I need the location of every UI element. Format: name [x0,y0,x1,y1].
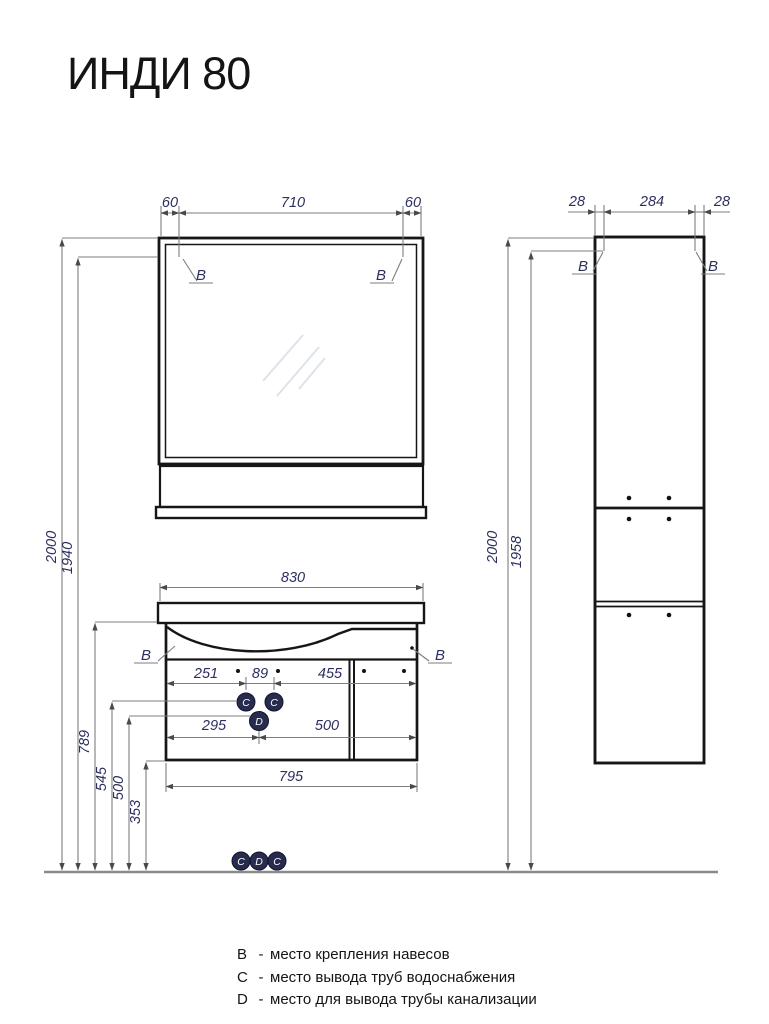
legend-key-b: B [237,946,252,963]
mounting-dot [276,669,280,673]
dim-vanity-row1: 251 89 455 [167,666,416,690]
leader-line [183,259,197,281]
dim-left-heights: 2000 1940 789 545 500 353 [44,238,251,870]
dim-label: 500 [111,776,127,800]
legend-text-d: место для вывода трубы канализации [270,991,537,1008]
dim-vanity-830: 830 [160,570,423,601]
legend-row-b: B-место крепления навесов [237,946,537,969]
mirror-reflection [263,335,325,396]
c-marker-label: C [270,697,278,709]
dim-label: 710 [281,195,305,211]
b-label: B [578,258,588,275]
dim-mirror-top: 60 710 60 [161,195,421,257]
callout-b-vanity-left: B [134,646,175,664]
basin-curve [167,627,416,651]
legend: B-место крепления навесов C-место вывода… [237,946,537,1014]
dim-label: 28 [713,194,730,210]
legend-row-d: D-место для вывода трубы канализации [237,991,537,1014]
dim-label: 830 [281,570,305,586]
dim-vanity-row2: 295 500 [167,718,416,744]
dim-label: 2000 [485,531,501,564]
mounting-dot [627,517,632,522]
c-marker-label: C [237,856,245,868]
mounting-dot [627,496,632,501]
dim-label: 295 [201,718,227,734]
b-label: B [196,267,206,284]
dim-label: 284 [639,194,664,210]
leader-line [392,259,402,281]
d-marker-label: D [255,856,263,868]
mirror-shelf [160,466,423,507]
callout-b-mirror-right: B [370,259,402,284]
mounting-dot [236,669,240,673]
dim-tall-top: 28 284 28 [568,194,730,251]
dim-label: 795 [279,769,304,785]
sink-top [158,603,424,623]
legend-key-d: D [237,991,252,1008]
callout-b-mirror-left: B [183,259,213,284]
mounting-dot [667,496,672,501]
legend-row-c: C-место вывода труб водоснабжения [237,969,537,992]
dim-label: 353 [128,800,144,824]
dim-label: 60 [405,195,421,211]
tall-cabinet [595,237,704,763]
b-label: B [435,647,445,664]
legend-text-c: место вывода труб водоснабжения [270,969,515,986]
mounting-dot [402,669,406,673]
water-supply-markers: C C D [237,693,283,731]
c-marker-label: C [273,856,281,868]
dim-label: 500 [315,718,339,734]
dim-label: 1958 [509,536,525,568]
dim-label: 545 [94,766,110,791]
mounting-dot [362,669,366,673]
technical-drawing: 60 710 60 B B [0,0,769,1024]
drawing-page: ИНДИ 80 60 [0,0,769,1024]
callout-b-vanity-right: B [413,647,452,664]
dim-vanity-795: 795 [166,763,417,792]
mounting-dot [627,613,632,618]
mirror-base [156,507,426,518]
d-marker-label: D [255,716,263,728]
dim-label: 789 [77,730,93,754]
dim-label: 2000 [44,531,60,564]
legend-text-b: место крепления навесов [270,946,450,963]
mounting-dot [667,517,672,522]
b-label: B [376,267,386,284]
legend-dash: - [252,969,270,986]
legend-dash: - [252,991,270,1008]
dim-label: 89 [252,666,268,682]
c-marker-label: C [242,697,250,709]
tall-cabinet-outline [595,237,704,763]
mounting-dot [667,613,672,618]
dim-right-heights: 2000 1958 [485,238,603,870]
b-label: B [708,258,718,275]
dim-label: 455 [318,666,343,682]
callout-b-tall-right: B [696,252,725,275]
dim-label: 251 [193,666,218,682]
floor-pipe-markers: C D C [232,852,286,870]
callout-b-tall-left: B [572,252,603,275]
dim-label: 1940 [60,542,76,574]
legend-key-c: C [237,969,252,986]
dim-label: 28 [568,194,585,210]
legend-dash: - [252,946,270,963]
b-label: B [141,647,151,664]
dim-label: 60 [162,195,178,211]
